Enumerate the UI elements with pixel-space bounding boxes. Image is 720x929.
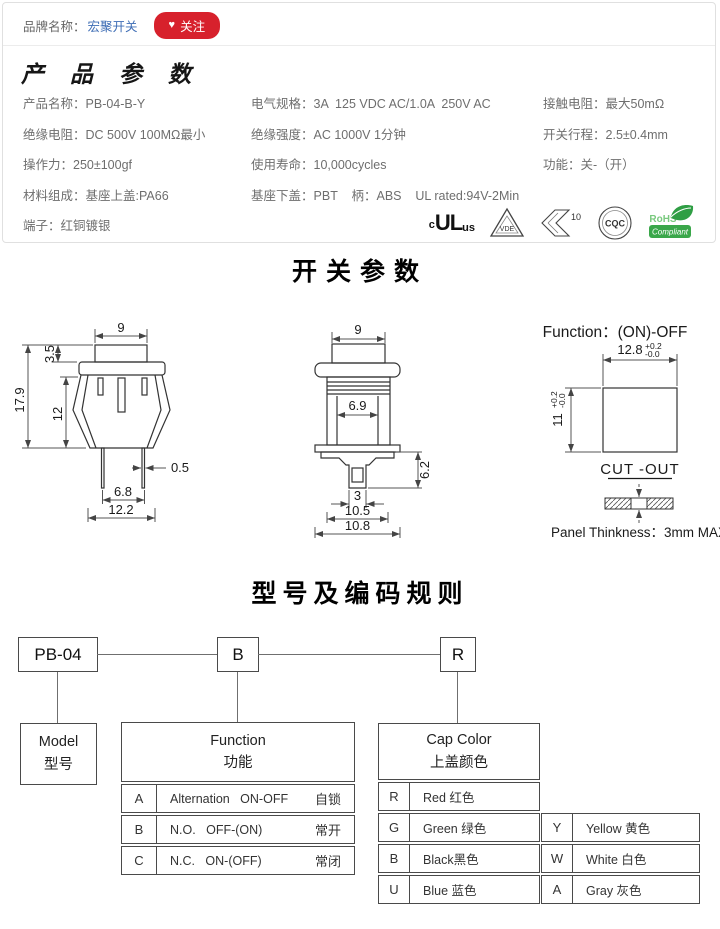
function-table: Function 功能 A Alternation ON-OFF 自锁 B N.…: [121, 722, 355, 875]
model-zh: 型号: [44, 753, 73, 774]
dim-lower-height: 6.2: [417, 461, 432, 479]
connector-line: [457, 672, 458, 723]
side-view-dimensions: 9 6.9 6.2 3 10.5 10.8: [345, 322, 432, 533]
cap-color-row: G Green 绿色: [378, 813, 540, 842]
spec-value: 2.5±0.4mm: [606, 128, 668, 142]
cap-color-desc: Yellow 黄色: [573, 814, 699, 841]
cutout-dimension-lines: [565, 354, 677, 452]
rohs-icon: RoHS Compliant: [647, 203, 699, 243]
color-code-box: R: [440, 637, 476, 672]
side-view-outline: [315, 344, 400, 488]
product-info-card: 品牌名称： 宏聚开关 ♥ 关注 产 品 参 数 产品名称：PB-04-B-Y 绝…: [2, 2, 716, 243]
spec-label: 端子：: [23, 219, 61, 233]
dim-top-width: 9: [117, 320, 124, 335]
cap-color-desc: Black黑色: [410, 845, 539, 872]
cutout-dimensions: 12.8 +0.2 -0.0 11 +0.2 -0.0: [549, 341, 662, 427]
function-desc-zh: 自锁: [315, 785, 354, 812]
connector-line: [97, 654, 217, 655]
function-row: A Alternation ON-OFF 自锁: [121, 784, 355, 813]
cap-color-desc: Blue 蓝色: [410, 876, 539, 903]
spec-label: 基座下盖：: [251, 189, 314, 203]
product-params-title: 产 品 参 数: [21, 55, 200, 89]
spec-column-1: 产品名称：PB-04-B-Y 绝缘电阻：DC 500V 100MΩ最小 操作力：…: [23, 89, 205, 242]
spec-value: PB-04-B-Y: [86, 97, 146, 111]
spec-row: 接触电阻：最大50mΩ: [543, 89, 668, 120]
spec-row: 功能：关-（开）: [543, 150, 668, 181]
side-view-drawing: 9 6.9 6.2 3 10.5 10.8: [285, 312, 475, 542]
spec-value: 10,000cycles: [314, 158, 387, 172]
spec-row: 产品名称：PB-04-B-Y: [23, 89, 205, 120]
cap-color-table-extra: Y Yellow 黄色 W White 白色 A Gray 灰色: [541, 813, 700, 904]
cap-color-row: W White 白色: [541, 844, 700, 873]
cap-color-code: U: [379, 876, 410, 903]
spec-label: 产品名称：: [23, 97, 86, 111]
dim-total-height: 17.9: [12, 387, 27, 412]
spec-row: 操作力：250±100gf: [23, 150, 205, 181]
spec-row: 绝缘电阻：DC 500V 100MΩ最小: [23, 120, 205, 151]
svg-text:Compliant: Compliant: [652, 228, 689, 237]
spec-label: 电气规格：: [251, 97, 314, 111]
cap-color-code: R: [379, 783, 410, 810]
divider: [3, 45, 715, 46]
ul-icon: cULus: [429, 212, 475, 234]
cap-color-desc: Red 红色: [410, 783, 539, 810]
cap-color-code: Y: [542, 814, 573, 841]
cap-color-table: Cap Color 上盖颜色 R Red 红色 G Green 绿色 B Bla…: [378, 723, 540, 904]
dim-base-width: 10.8: [345, 518, 370, 533]
cap-color-row: A Gray 灰色: [541, 875, 700, 904]
function-label: Function：(ON)-OFF: [543, 324, 688, 341]
dim-height-tol-dn: -0.0: [557, 393, 567, 408]
cap-color-row: Y Yellow 黄色: [541, 813, 700, 842]
spec-row: 开关行程：2.5±0.4mm: [543, 120, 668, 151]
svg-text:VDE: VDE: [500, 226, 515, 233]
spec-label: 绝缘强度：: [251, 128, 314, 142]
function-code: A: [122, 785, 157, 812]
certification-icons: cULus VDE 10 CQC RoHS C: [429, 203, 699, 243]
function-desc: N.C. ON-(OFF): [157, 847, 315, 874]
brand-row: 品牌名称： 宏聚开关 ♥ 关注: [23, 12, 220, 39]
brand-label: 品牌名称：: [23, 16, 86, 35]
ul-label: UL: [435, 212, 462, 234]
spec-value: 基座上盖:PA66: [86, 189, 169, 203]
svg-text:CQC: CQC: [605, 219, 626, 229]
leaf-shape: [671, 205, 693, 220]
spec-label: 操作力：: [23, 158, 73, 172]
cap-color-zh: 上盖颜色: [430, 752, 488, 774]
spec-value: 最大50mΩ: [606, 97, 665, 111]
spec-label: 开关行程：: [543, 128, 606, 142]
spec-label: 接触电阻：: [543, 97, 606, 111]
function-en: Function: [210, 730, 266, 752]
connector-line: [258, 654, 440, 655]
spec-value: 3A 125 VDC AC/1.0A 250V AC: [314, 97, 491, 111]
spec-row: 使用寿命：10,000cycles: [251, 150, 519, 181]
function-row: B N.O. OFF-(ON) 常开: [121, 815, 355, 844]
cap-color-row: U Blue 蓝色: [378, 875, 540, 904]
dim-inner-width: 6.9: [348, 398, 366, 413]
cqc-icon: CQC: [597, 205, 633, 241]
spec-column-3: 接触电阻：最大50mΩ 开关行程：2.5±0.4mm 功能：关-（开）: [543, 89, 668, 181]
cap-color-row: R Red 红色: [378, 782, 540, 811]
function-code-box: B: [217, 637, 259, 672]
function-code: B: [122, 816, 157, 843]
spec-column-2: 电气规格：3A 125 VDC AC/1.0A 250V AC 绝缘强度：AC …: [251, 89, 519, 211]
connector-line: [57, 672, 58, 723]
function-desc-zh: 常开: [315, 816, 354, 843]
function-desc: Alternation ON-OFF: [157, 785, 315, 812]
brand-link[interactable]: 宏聚开关: [88, 16, 138, 35]
spec-value: PBT 柄：ABS UL rated:94V-2Min: [314, 189, 520, 203]
spec-row: 电气规格：3A 125 VDC AC/1.0A 250V AC: [251, 89, 519, 120]
cutout-drawing: Function：(ON)-OFF 12.8 +0.2 -0.0 11 +0.2…: [518, 316, 720, 540]
dim-pin-pitch: 6.8: [114, 484, 132, 499]
front-view-drawing: 9 3.5 17.9 12 0.5 6.8 12.2: [8, 310, 238, 538]
function-code: C: [122, 847, 157, 874]
panel-thickness-label: Panel Thinkness：3mm MAX: [551, 525, 720, 540]
dim-cutout-width: 12.8: [617, 342, 642, 357]
heart-icon: ♥: [169, 20, 176, 31]
ul-us-label: us: [462, 222, 475, 234]
cap-color-row: B Black黑色: [378, 844, 540, 873]
spec-row: 绝缘强度：AC 1000V 1分钟: [251, 120, 519, 151]
spec-label: 功能：: [543, 158, 581, 172]
dim-base-width: 12.2: [108, 502, 133, 517]
svg-text:10: 10: [571, 212, 581, 222]
function-row: C N.C. ON-(OFF) 常闭: [121, 846, 355, 875]
front-view-outline: [73, 345, 170, 488]
kc-icon: 10: [539, 208, 583, 238]
dim-button-height: 3.5: [42, 345, 57, 363]
cap-color-code: G: [379, 814, 410, 841]
dim-mid-width: 10.5: [345, 503, 370, 518]
model-code-box: PB-04: [18, 637, 98, 672]
spec-label: 绝缘电阻：: [23, 128, 86, 142]
switch-params-heading: 开关参数: [0, 252, 720, 288]
connector-line: [237, 672, 238, 722]
function-table-header: Function 功能: [121, 722, 355, 782]
function-desc-zh: 常闭: [315, 847, 354, 874]
spec-value: DC 500V 100MΩ最小: [86, 128, 206, 142]
dim-slot-width: 3: [354, 488, 361, 503]
cap-color-code: A: [542, 876, 573, 903]
cap-color-en: Cap Color: [426, 729, 491, 751]
function-zh: 功能: [224, 752, 253, 774]
front-view-dimensions: 9 3.5 17.9 12 0.5 6.8 12.2: [12, 320, 189, 517]
coding-diagram: PB-04 B R Model 型号 Function 功能 A Alterna…: [0, 630, 720, 929]
dim-pin-width: 0.5: [171, 460, 189, 475]
coding-rules-heading: 型号及编码规则: [0, 574, 720, 610]
product-detail-page: 品牌名称： 宏聚开关 ♥ 关注 产 品 参 数 产品名称：PB-04-B-Y 绝…: [0, 0, 720, 929]
panel-section: [605, 484, 673, 523]
cap-color-code: W: [542, 845, 573, 872]
dim-width-tol-dn: -0.0: [645, 349, 660, 359]
spec-row: 材料组成：基座上盖:PA66: [23, 181, 205, 212]
cap-color-code: B: [379, 845, 410, 872]
function-desc: N.O. OFF-(ON): [157, 816, 315, 843]
cap-color-desc: White 白色: [573, 845, 699, 872]
spec-value: 红铜镀银: [61, 219, 111, 233]
cutout-rect: [603, 388, 677, 452]
follow-button[interactable]: ♥ 关注: [154, 12, 221, 39]
spec-row: 端子：红铜镀银: [23, 211, 205, 242]
spec-label: 使用寿命：: [251, 158, 314, 172]
model-legend-box: Model 型号: [20, 723, 97, 785]
dim-top-width: 9: [354, 322, 361, 337]
dim-body-height: 12: [50, 407, 65, 421]
follow-label: 关注: [180, 16, 205, 35]
dim-cutout-height: 11: [550, 413, 565, 427]
vde-icon: VDE: [489, 207, 525, 239]
cap-color-header: Cap Color 上盖颜色: [378, 723, 540, 780]
model-en: Model: [39, 734, 79, 750]
cap-color-desc: Gray 灰色: [573, 876, 699, 903]
cap-color-desc: Green 绿色: [410, 814, 539, 841]
cutout-label: CUT -OUT: [600, 461, 679, 478]
spec-label: 材料组成：: [23, 189, 86, 203]
spec-value: 250±100gf: [73, 158, 132, 172]
spec-value: 关-（开）: [581, 158, 635, 172]
spec-value: AC 1000V 1分钟: [314, 128, 406, 142]
